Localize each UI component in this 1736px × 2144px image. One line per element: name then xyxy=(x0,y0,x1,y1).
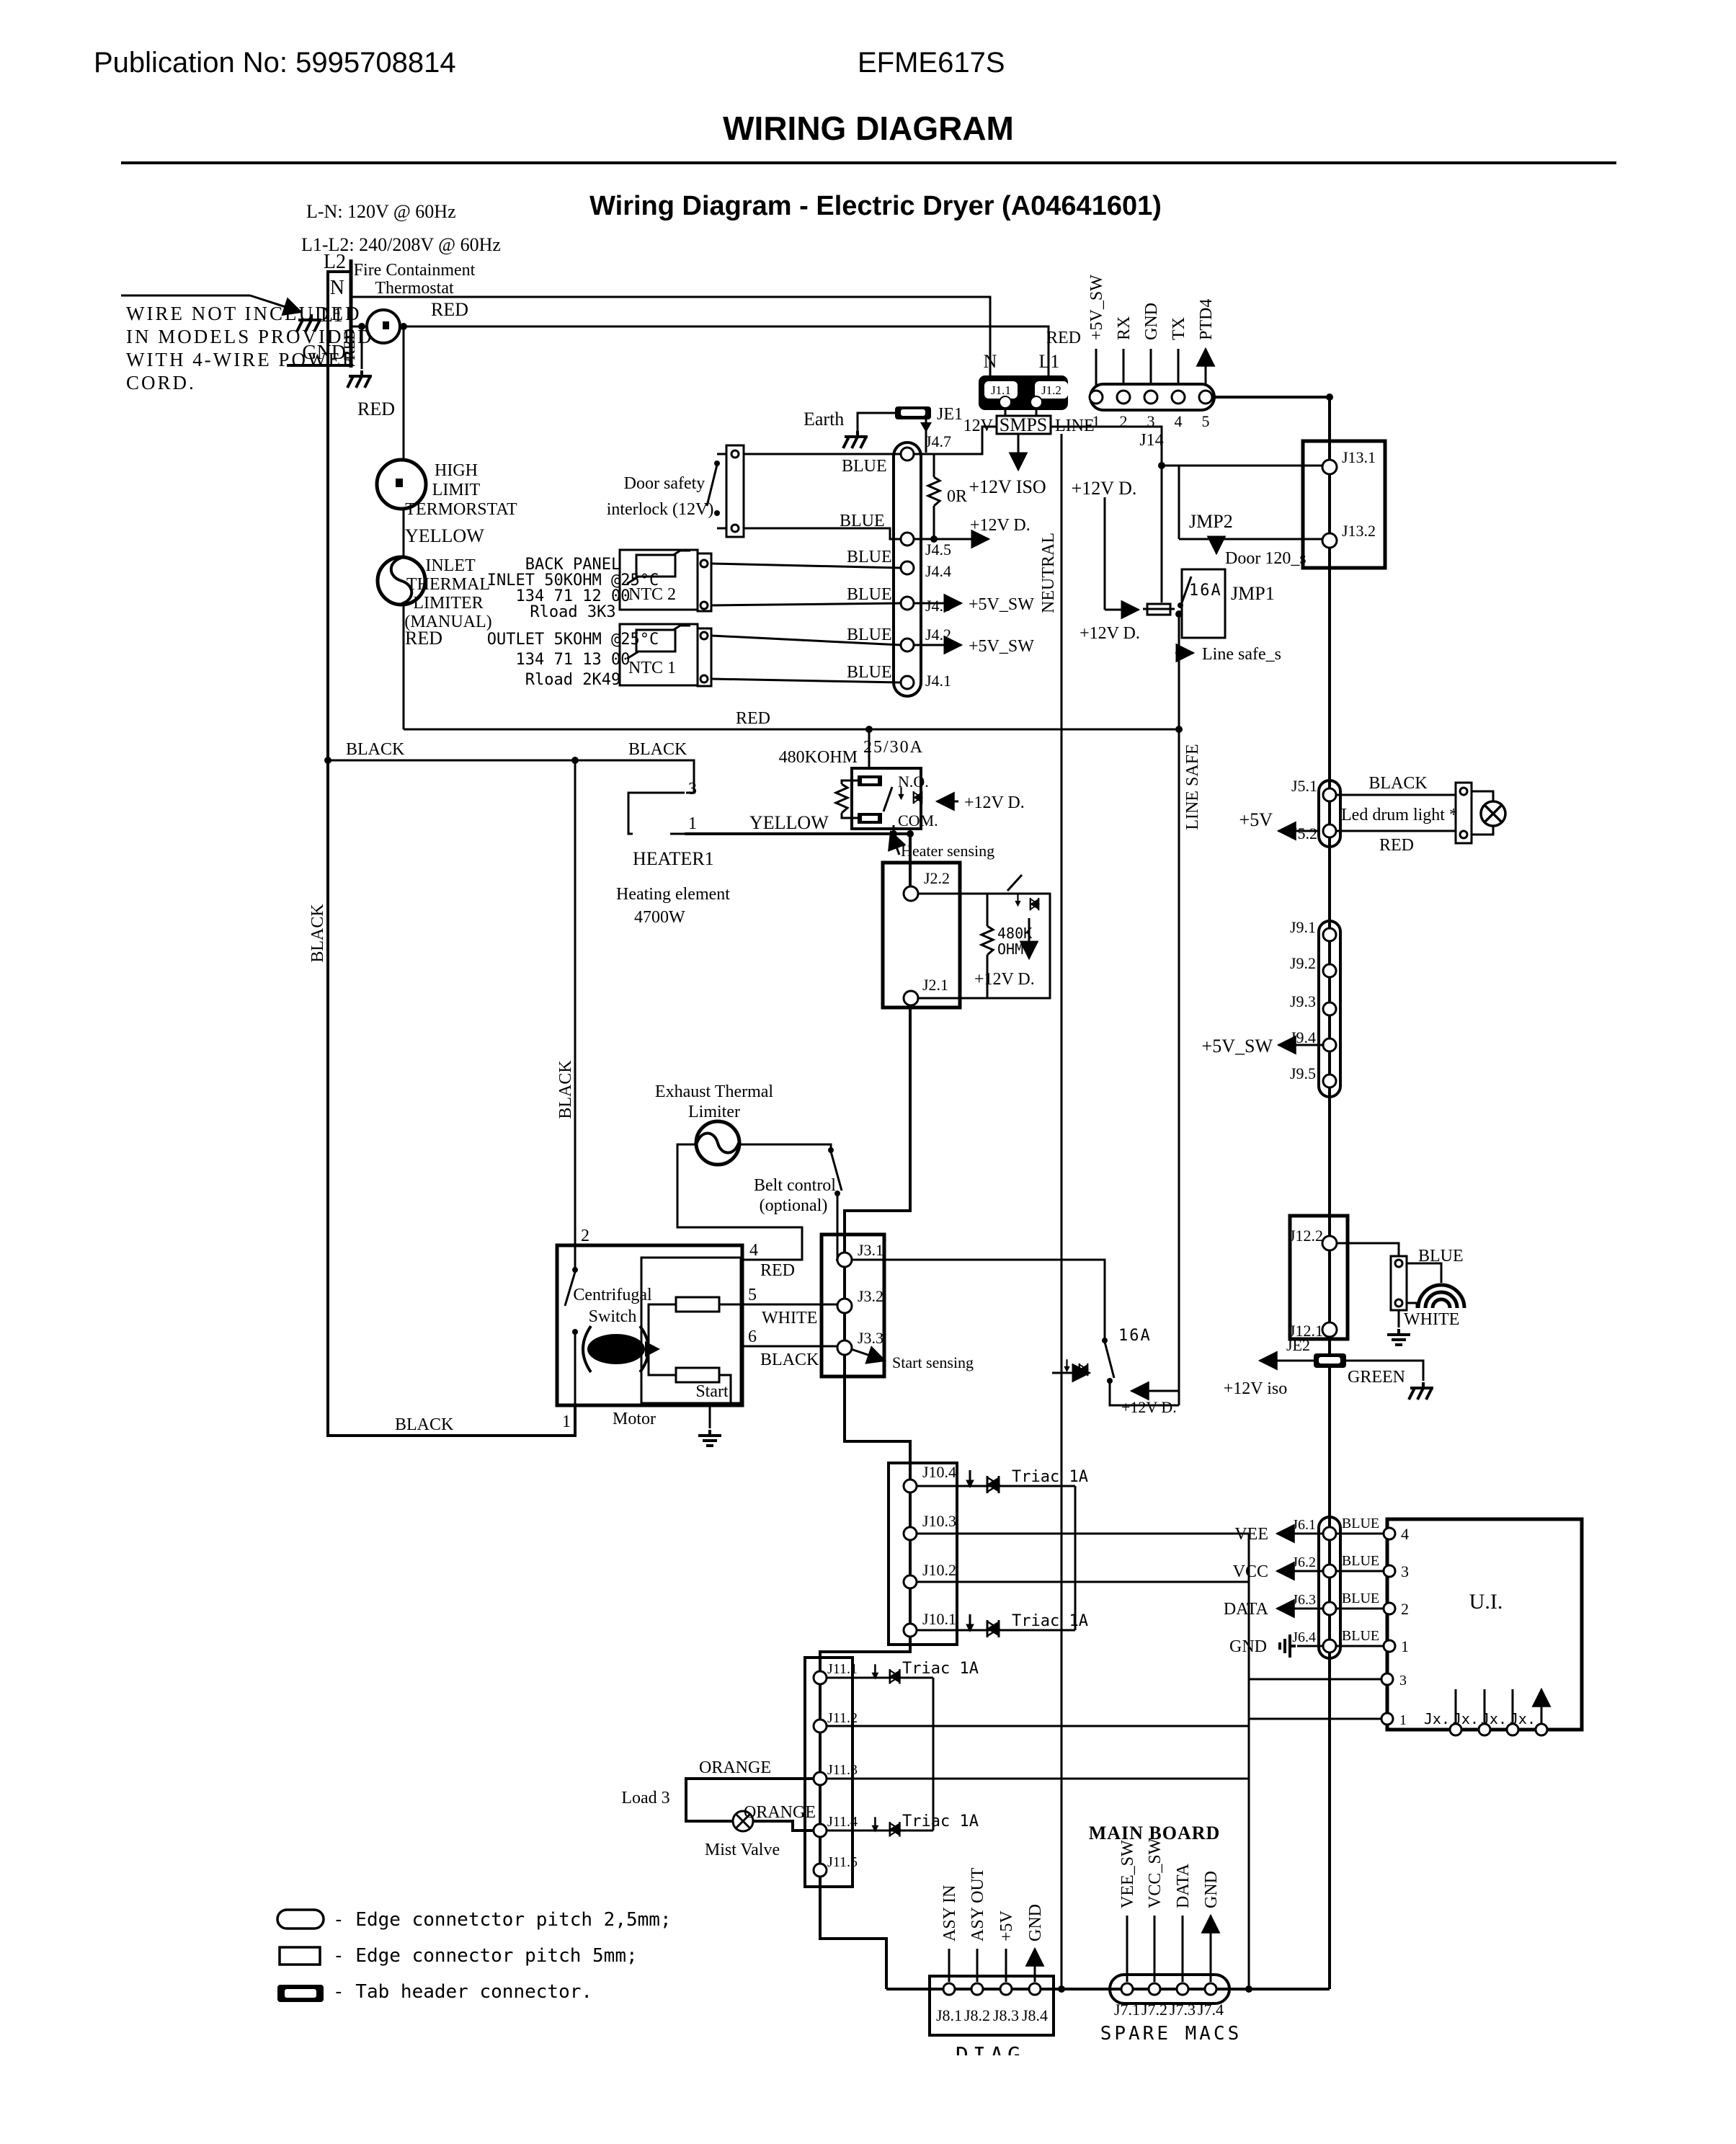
svg-text:VEE: VEE xyxy=(1234,1525,1268,1544)
svg-text:J5.2: J5.2 xyxy=(1291,824,1317,842)
svg-text:J9.5: J9.5 xyxy=(1290,1064,1316,1082)
svg-text:J6.4: J6.4 xyxy=(1292,1629,1316,1645)
svg-text:- Tab header connector.: - Tab header connector. xyxy=(333,1981,592,2003)
svg-text:J3.1: J3.1 xyxy=(858,1241,883,1259)
svg-text:GND: GND xyxy=(1026,1904,1045,1941)
svg-text:J9.2: J9.2 xyxy=(1290,954,1316,972)
svg-text:J2.1: J2.1 xyxy=(922,976,948,994)
svg-text:2: 2 xyxy=(1401,1600,1409,1618)
diagram-title: Wiring Diagram - Electric Dryer (A046416… xyxy=(589,191,1162,221)
wire-red-l1: RED xyxy=(431,299,468,320)
svg-text:WHITE: WHITE xyxy=(1404,1310,1459,1329)
j2-labels: J2.2 J2.1 480K OHM +12V D. xyxy=(922,869,1035,994)
svg-text:Centrifugal: Centrifugal xyxy=(573,1286,652,1304)
svg-text:J7.4: J7.4 xyxy=(1198,2001,1224,2019)
svg-text:ORANGE: ORANGE xyxy=(744,1803,816,1822)
svg-text:NTC 1: NTC 1 xyxy=(628,659,676,677)
svg-text:Belt control: Belt control xyxy=(754,1176,836,1195)
svg-text:J6.2: J6.2 xyxy=(1292,1554,1316,1570)
svg-text:WIRE NOT INCLUDED: WIRE NOT INCLUDED xyxy=(126,303,361,324)
svg-text:J8.2: J8.2 xyxy=(964,2006,990,2024)
svg-text:J10.2: J10.2 xyxy=(922,1561,956,1579)
svg-text:BLUE: BLUE xyxy=(1342,1591,1379,1606)
j2-triac xyxy=(1015,894,1038,910)
wire-red-j1: RED xyxy=(1046,329,1081,347)
svg-text:NTC 2: NTC 2 xyxy=(628,585,676,604)
svg-text:Heater sensing: Heater sensing xyxy=(901,842,994,860)
12vd-rail: +12V D. xyxy=(1072,478,1137,499)
triac-j10-4 xyxy=(966,1470,999,1493)
smps-line: LINE xyxy=(1055,417,1095,435)
svg-text:Triac 1A: Triac 1A xyxy=(1012,1468,1088,1486)
svg-text:6: 6 xyxy=(748,1327,757,1346)
svg-text:Rload 2K49: Rload 2K49 xyxy=(525,671,620,689)
svg-text:J4.5: J4.5 xyxy=(925,541,951,559)
svg-text:BLUE: BLUE xyxy=(1342,1628,1379,1644)
svg-text:J7.1: J7.1 xyxy=(1114,2001,1140,2019)
j1-2: J1.2 xyxy=(1041,383,1061,397)
svg-text:J10.4: J10.4 xyxy=(922,1463,956,1481)
svg-text:J4.2: J4.2 xyxy=(925,626,951,644)
drum-lamp-symbol xyxy=(1481,801,1505,826)
12v-iso: +12V ISO xyxy=(969,476,1046,497)
svg-text:LINE SAFE: LINE SAFE xyxy=(1183,744,1202,829)
svg-text:COM.: COM. xyxy=(898,811,938,829)
wire-yellow-chain: YELLOW xyxy=(405,525,484,546)
svg-text:J6.1: J6.1 xyxy=(1292,1517,1316,1533)
model-number: EFME617S xyxy=(858,47,1005,79)
svg-text:BLUE: BLUE xyxy=(840,512,885,530)
svg-text:BLUE: BLUE xyxy=(1342,1516,1379,1531)
svg-text:3: 3 xyxy=(1399,1673,1407,1689)
svg-text:J4.4: J4.4 xyxy=(925,562,951,580)
svg-text:CORD.: CORD. xyxy=(126,372,196,393)
svg-text:Led drum light *: Led drum light * xyxy=(1341,806,1458,824)
fuse-jmp1 xyxy=(1147,569,1225,638)
svg-text:BLUE: BLUE xyxy=(847,548,892,566)
svg-text:Exhaust Thermal: Exhaust Thermal xyxy=(655,1082,774,1101)
svg-text:J9.3: J9.3 xyxy=(1290,992,1316,1010)
svg-text:16A: 16A xyxy=(1189,582,1222,600)
svg-text:Triac 1A: Triac 1A xyxy=(1012,1612,1088,1630)
svg-text:J11.4: J11.4 xyxy=(827,1814,858,1830)
svg-text:4: 4 xyxy=(1401,1525,1409,1543)
svg-text:2: 2 xyxy=(1120,412,1128,430)
svg-text:Start: Start xyxy=(695,1382,729,1401)
legend-labels: - Edge connetctor pitch 2,5mm; - Edge co… xyxy=(333,1909,672,2003)
svg-text:BLUE: BLUE xyxy=(1418,1247,1464,1266)
earth-symbol-je1 xyxy=(843,431,868,448)
svg-text:N.O.: N.O. xyxy=(898,773,929,791)
connector-door-interlock xyxy=(726,445,744,537)
svg-text:1: 1 xyxy=(1399,1712,1407,1728)
svg-text:Line safe_s: Line safe_s xyxy=(1202,645,1281,664)
tab-je2 xyxy=(1314,1353,1346,1368)
svg-text:J6.3: J6.3 xyxy=(1292,1592,1316,1608)
earth-symbol-terminal xyxy=(347,370,372,388)
heater-labels: 3 1 YELLOW HEATER1 Heating element 4700W xyxy=(616,780,829,927)
svg-text:BLACK: BLACK xyxy=(1368,774,1428,793)
svg-text:480KOHM: 480KOHM xyxy=(779,748,858,767)
svg-text:(optional): (optional) xyxy=(760,1196,828,1215)
j11-labels: J11.1 J11.2 J11.3 J11.4 J11.5 Triac 1A T… xyxy=(621,1660,979,1870)
svg-text:JMP1: JMP1 xyxy=(1231,583,1275,604)
fire-thermostat-label-2: Thermostat xyxy=(375,279,454,298)
j42-5vsw: +5V_SW xyxy=(969,637,1034,656)
ground-wifi xyxy=(1387,1329,1410,1345)
spare-macs-label: SPARE MACS xyxy=(1100,2023,1242,2045)
svg-text:INLET: INLET xyxy=(425,556,476,575)
svg-text:J13.2: J13.2 xyxy=(1342,522,1376,540)
wire-red-chain-top: RED xyxy=(357,399,395,419)
svg-text:Limiter: Limiter xyxy=(688,1103,740,1121)
svg-text:Triac 1A: Triac 1A xyxy=(902,1812,979,1831)
svg-text:480K: 480K xyxy=(997,925,1032,942)
svg-text:PTD4: PTD4 xyxy=(1197,299,1216,340)
svg-text:Door 120_s: Door 120_s xyxy=(1225,549,1307,568)
j9-labels: J9.1 J9.2 J9.3 J9.4 J9.5 +5V_SW xyxy=(1202,918,1316,1082)
svg-text:Mist Valve: Mist Valve xyxy=(705,1841,780,1859)
svg-text:J13.1: J13.1 xyxy=(1342,448,1376,466)
svg-text:BLUE: BLUE xyxy=(842,457,887,476)
diag-label-clipped: DIAG xyxy=(956,2043,1025,2068)
svg-text:J10.3: J10.3 xyxy=(922,1512,956,1530)
wire-black-bottom: BLACK xyxy=(395,1415,454,1434)
svg-text:J10.1: J10.1 xyxy=(922,1610,956,1628)
neutral-label: NEUTRAL xyxy=(1039,533,1058,613)
svg-text:J7.2: J7.2 xyxy=(1141,2001,1167,2019)
svg-text:TERMORSTAT: TERMORSTAT xyxy=(405,500,517,519)
svg-text:IN MODELS PROVIDED: IN MODELS PROVIDED xyxy=(126,326,374,347)
svg-text:3: 3 xyxy=(1147,412,1155,430)
svg-text:J9.1: J9.1 xyxy=(1290,918,1316,936)
j43-5vsw: +5V_SW xyxy=(969,595,1034,614)
tab-je1 xyxy=(895,406,932,432)
rating-ln: L-N: 120V @ 60Hz xyxy=(306,201,456,222)
svg-text:+5V_SW: +5V_SW xyxy=(1202,1036,1273,1057)
svg-text:3: 3 xyxy=(1401,1562,1409,1580)
exhaust-thermal-limiter-symbol xyxy=(696,1121,739,1165)
j3-labels: J3.1 J3.2 J3.3 Start sensing 16A +12V D. xyxy=(858,1241,1177,1416)
wire-black-left: BLACK xyxy=(346,740,405,759)
je1-label: JE1 xyxy=(937,405,963,424)
svg-text:HIGH: HIGH xyxy=(435,461,478,480)
svg-text:25/30A: 25/30A xyxy=(863,738,924,757)
wire-black-vert: BLACK xyxy=(556,1060,575,1119)
svg-text:- Edge connetctor pitch 2,5mm;: - Edge connetctor pitch 2,5mm; xyxy=(333,1909,672,1931)
svg-text:5: 5 xyxy=(748,1286,757,1304)
svg-text:+12V D.: +12V D. xyxy=(974,970,1035,989)
page-title: WIRING DIAGRAM xyxy=(723,110,1014,147)
svg-text:J2.2: J2.2 xyxy=(924,869,950,887)
svg-text:J14: J14 xyxy=(1139,431,1163,450)
wire-red-vert: RED xyxy=(340,329,358,360)
svg-text:Load 3: Load 3 xyxy=(621,1789,669,1807)
svg-text:J11.1: J11.1 xyxy=(827,1661,858,1677)
triac-j10-1 xyxy=(966,1614,999,1637)
svg-text:Start sensing: Start sensing xyxy=(892,1353,974,1371)
svg-text:J8.4: J8.4 xyxy=(1022,2006,1048,2024)
wire-black-rail: BLACK xyxy=(308,904,327,963)
svg-text:OHM: OHM xyxy=(997,940,1023,958)
svg-text:J4.3: J4.3 xyxy=(925,597,951,615)
svg-text:BLUE: BLUE xyxy=(847,663,892,682)
svg-text:LIMITER: LIMITER xyxy=(413,594,483,613)
smps-label: SMPS xyxy=(1000,414,1048,435)
svg-text:VEE_SW: VEE_SW xyxy=(1118,1840,1137,1908)
svg-text:BLUE: BLUE xyxy=(1342,1553,1379,1569)
earth-symbol-green xyxy=(1409,1382,1433,1400)
svg-text:1: 1 xyxy=(688,814,697,833)
svg-text:WITH 4-WIRE POWER: WITH 4-WIRE POWER xyxy=(126,349,357,370)
svg-text:+5V: +5V xyxy=(997,1910,1016,1941)
svg-text:DATA: DATA xyxy=(1224,1600,1269,1619)
svg-text:J8.1: J8.1 xyxy=(936,2006,962,2024)
svg-text:4: 4 xyxy=(749,1241,758,1260)
svg-text:DATA: DATA xyxy=(1174,1863,1193,1908)
svg-text:J11.3: J11.3 xyxy=(827,1762,858,1778)
terminal-l2: L2 xyxy=(324,251,346,273)
svg-text:1: 1 xyxy=(562,1413,571,1431)
svg-text:WHITE: WHITE xyxy=(762,1309,817,1327)
svg-text:J7.3: J7.3 xyxy=(1170,2001,1196,2019)
svg-text:ORANGE: ORANGE xyxy=(699,1758,771,1777)
svg-text:2: 2 xyxy=(581,1227,589,1245)
svg-text:GREEN: GREEN xyxy=(1348,1368,1405,1387)
wire-red-chain-bottom: RED xyxy=(405,628,442,649)
svg-text:GND: GND xyxy=(1229,1637,1267,1656)
svg-text:LIMIT: LIMIT xyxy=(432,481,481,499)
svg-text:+12V D.: +12V D. xyxy=(1121,1398,1177,1416)
svg-text:HEATER1: HEATER1 xyxy=(633,848,714,869)
svg-text:J4.1: J4.1 xyxy=(925,672,951,690)
svg-text:134 71 13 00: 134 71 13 00 xyxy=(516,651,631,669)
svg-text:Jx.: Jx. xyxy=(1424,1710,1450,1727)
j6-ui-labels: J6.1 J6.2 J6.3 J6.4 VEE VCC DATA GND BLU… xyxy=(1224,1516,1536,1728)
door-safety-label-2: interlock (12V) xyxy=(607,500,714,519)
svg-text:Switch: Switch xyxy=(589,1307,637,1326)
svg-text:J3.2: J3.2 xyxy=(858,1287,883,1305)
svg-text:J11.5: J11.5 xyxy=(827,1854,858,1870)
resistor-480k-heater xyxy=(836,784,847,813)
j12-labels: J12.2 J12.1 BLUE WHITE GREEN JE2 +12V is… xyxy=(1224,1227,1464,1398)
svg-text:J4.7: J4.7 xyxy=(925,432,951,450)
svg-text:J8.3: J8.3 xyxy=(993,2006,1019,2024)
blue-wire-labels: BLUE BLUE BLUE BLUE BLUE BLUE xyxy=(840,457,892,682)
svg-text:+5V_SW: +5V_SW xyxy=(1087,275,1106,340)
svg-text:JMP2: JMP2 xyxy=(1189,511,1233,532)
svg-text:BLUE: BLUE xyxy=(847,585,892,604)
svg-text:J5.1: J5.1 xyxy=(1291,777,1317,795)
ground-motor-start xyxy=(698,1430,721,1446)
wiring-diagram-page: Publication No: 5995708814 EFME617S WIRI… xyxy=(0,0,1736,2144)
resistor-480k-j2 xyxy=(981,926,993,955)
svg-text:JE2: JE2 xyxy=(1286,1336,1310,1354)
triac-j11-1 xyxy=(872,1664,899,1683)
svg-text:Triac 1A: Triac 1A xyxy=(902,1660,979,1678)
svg-text:J3.3: J3.3 xyxy=(858,1329,883,1347)
svg-text:4: 4 xyxy=(1175,412,1183,430)
j8-labels: ASY IN ASY OUT +5V GND J8.1 J8.2 J8.3 J8… xyxy=(936,1867,1048,2024)
j13-area-labels: J13.1 J13.2 JMP2 Door 120_s 16A JMP1 +12… xyxy=(1080,448,1376,830)
j1-1: J1.1 xyxy=(991,383,1011,397)
svg-text:1: 1 xyxy=(1092,412,1100,430)
component-layer xyxy=(297,310,1505,1993)
svg-text:VCC: VCC xyxy=(1233,1562,1268,1581)
svg-text:U.I.: U.I. xyxy=(1469,1590,1503,1614)
svg-text:GND: GND xyxy=(1202,1871,1221,1908)
svg-text:5: 5 xyxy=(1202,412,1210,430)
wire-red-heater: RED xyxy=(736,709,770,728)
exhaust-belt-labels: Exhaust Thermal Limiter Belt control (op… xyxy=(655,1082,836,1215)
svg-text:J9.4: J9.4 xyxy=(1290,1028,1316,1046)
smps-12v: 12V xyxy=(963,417,994,435)
j45-12vd: +12V D. xyxy=(970,516,1031,535)
svg-text:16A: 16A xyxy=(1118,1327,1152,1345)
svg-text:BLACK: BLACK xyxy=(760,1351,819,1369)
j1-l1: L1 xyxy=(1039,351,1060,372)
svg-text:RED: RED xyxy=(1379,836,1414,855)
j1-n: N xyxy=(984,351,997,372)
legend-symbols xyxy=(277,1910,324,2002)
wire-black-heater: BLACK xyxy=(628,740,687,759)
wifi-antenna-symbol xyxy=(1418,1285,1464,1308)
triac-j11-4 xyxy=(872,1817,899,1836)
svg-text:Rload 3K3: Rload 3K3 xyxy=(530,603,615,621)
svg-text:THERMAL: THERMAL xyxy=(406,575,490,594)
resistor-0r xyxy=(928,477,940,506)
door-safety-label-1: Door safety xyxy=(624,474,705,493)
svg-text:RED: RED xyxy=(760,1261,795,1280)
publication-number: Publication No: 5995708814 xyxy=(94,47,456,79)
svg-text:Jx.: Jx. xyxy=(1453,1710,1479,1727)
svg-text:ASY OUT: ASY OUT xyxy=(969,1867,987,1941)
terminal-n: N xyxy=(330,277,344,299)
fire-thermostat-label-1: Fire Containment xyxy=(354,261,476,280)
svg-text:YELLOW: YELLOW xyxy=(749,812,829,833)
svg-text:+12V D.: +12V D. xyxy=(1080,624,1140,643)
svg-text:1: 1 xyxy=(1401,1637,1409,1655)
svg-text:+12V D.: +12V D. xyxy=(964,793,1025,812)
svg-text:BLUE: BLUE xyxy=(847,626,892,644)
svg-text:J11.2: J11.2 xyxy=(827,1710,858,1726)
svg-text:OUTLET 5KOHM @25°C: OUTLET 5KOHM @25°C xyxy=(487,631,659,649)
earth-label: Earth xyxy=(804,409,844,430)
svg-text:3: 3 xyxy=(688,780,697,799)
svg-text:Jx.: Jx. xyxy=(1481,1710,1507,1727)
svg-text:4700W: 4700W xyxy=(634,908,685,927)
svg-text:GND: GND xyxy=(1142,303,1161,340)
svg-text:J12.2: J12.2 xyxy=(1289,1227,1323,1245)
j10-labels: J10.4 J10.3 J10.2 J10.1 Triac 1A Triac 1… xyxy=(922,1463,1088,1630)
ntc1-labels: OUTLET 5KOHM @25°C 134 71 13 00 Rload 2K… xyxy=(487,631,676,689)
j4-labels: J4.7 J4.5 J4.4 J4.3 J4.2 J4.1 0R xyxy=(925,432,967,690)
svg-text:+12V iso: +12V iso xyxy=(1224,1379,1287,1398)
svg-text:Motor: Motor xyxy=(613,1410,656,1428)
j5-labels: J5.1 J5.2 BLACK Led drum light * RED +5V xyxy=(1239,774,1458,855)
svg-text:Heating element: Heating element xyxy=(616,885,730,904)
svg-text:Jx.: Jx. xyxy=(1510,1710,1536,1727)
svg-text:ASY IN: ASY IN xyxy=(940,1885,959,1941)
svg-text:- Edge connector pitch 5mm;: - Edge connector pitch 5mm; xyxy=(333,1945,638,1967)
svg-text:TX: TX xyxy=(1170,317,1188,340)
svg-text:+5V: +5V xyxy=(1239,809,1273,830)
svg-text:0R: 0R xyxy=(947,487,967,506)
svg-text:VCC_SW: VCC_SW xyxy=(1146,1838,1165,1908)
svg-text:RX: RX xyxy=(1115,316,1134,340)
